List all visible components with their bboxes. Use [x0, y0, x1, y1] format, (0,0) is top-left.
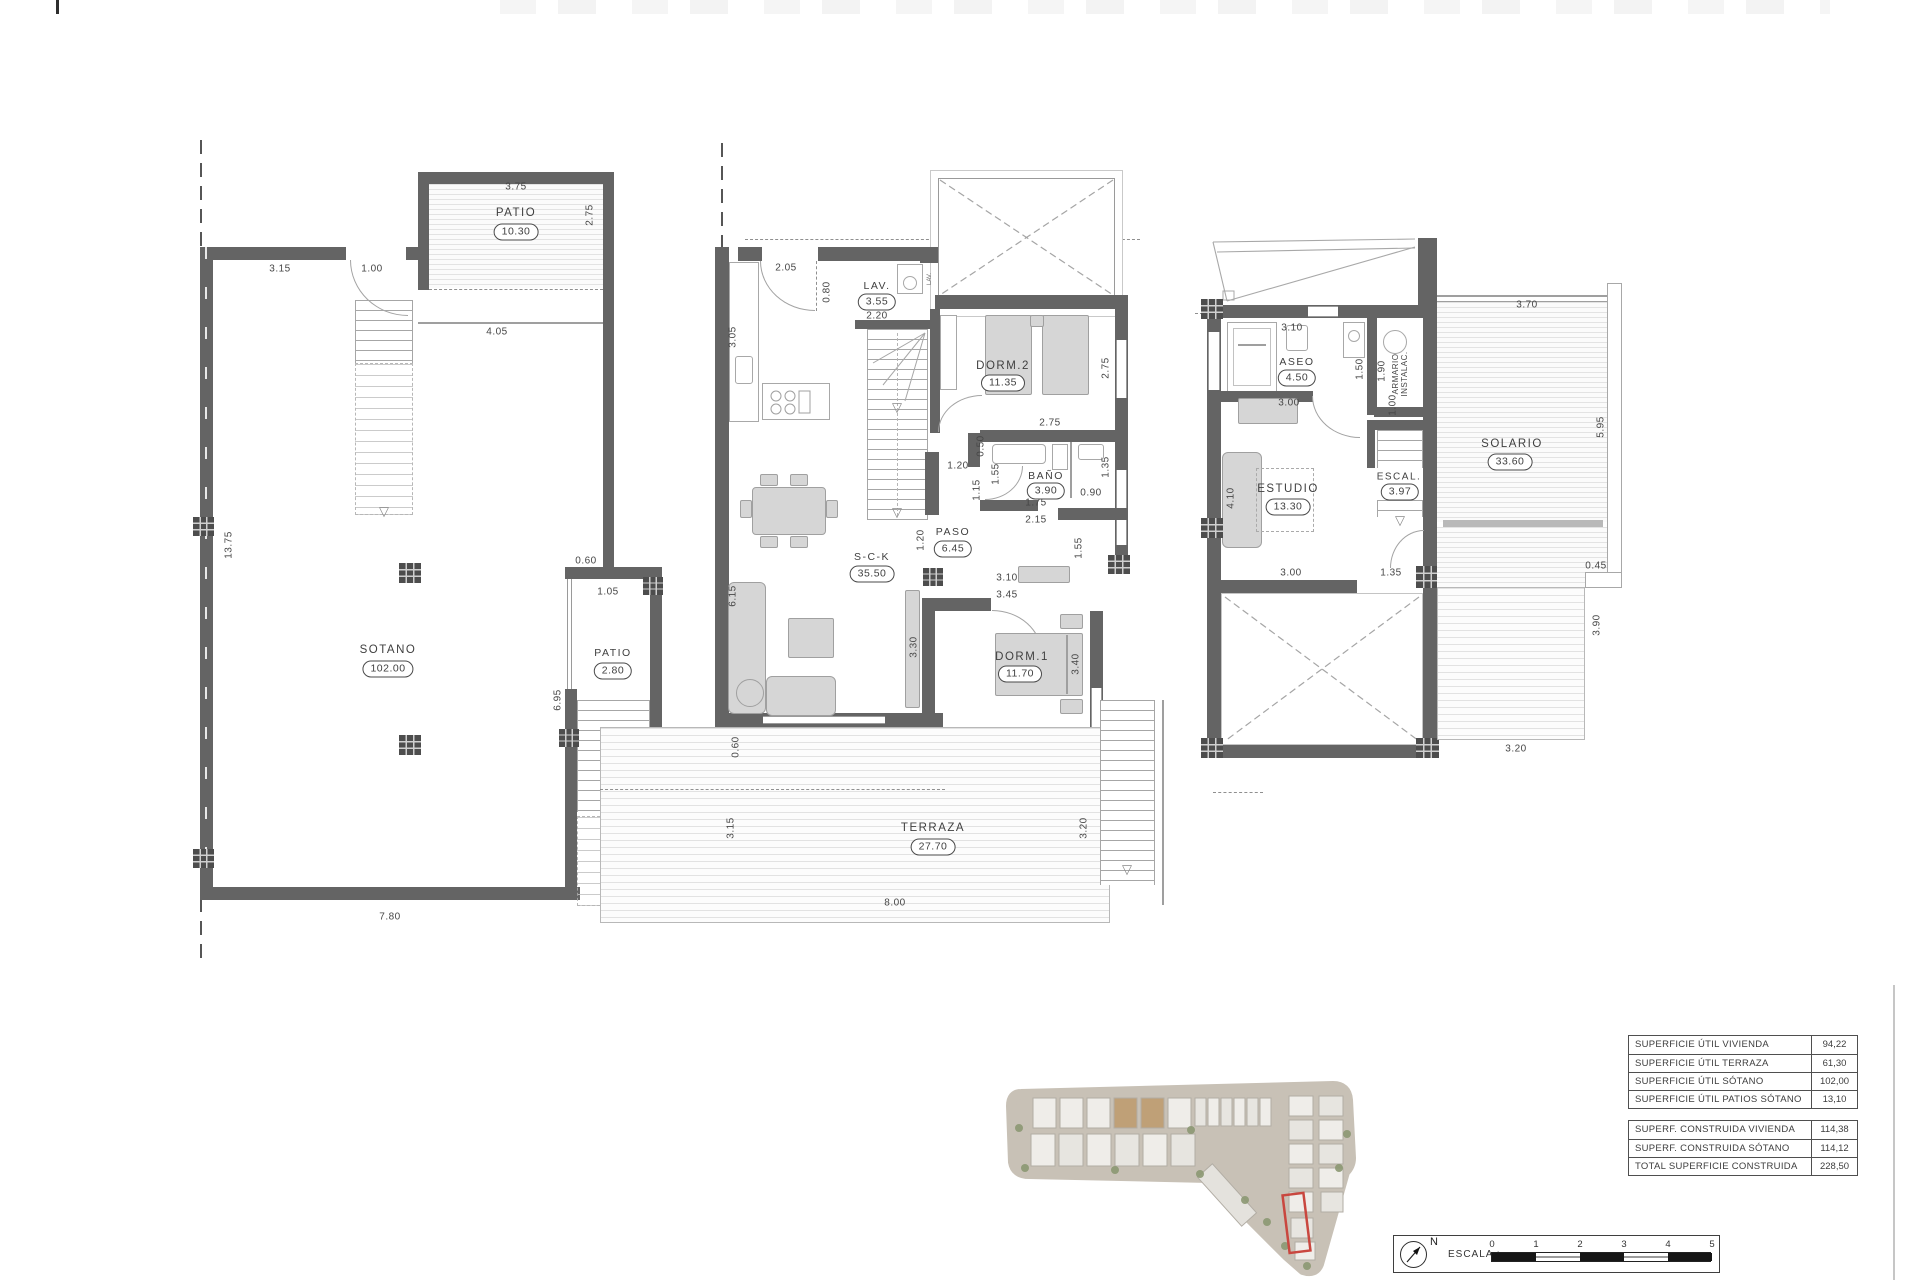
table-row: SUPERFICIE ÚTIL VIVIENDA94,22: [1629, 1036, 1857, 1054]
dorm1-nightstand-bottom: [1060, 699, 1083, 714]
room-area-solario: 33.60: [1488, 454, 1533, 471]
ground-stair-arrow-icon: ▽: [892, 401, 902, 416]
dim: 3.10: [1281, 323, 1302, 334]
room-area-aseo: 4.50: [1278, 370, 1316, 387]
room-label-solario: SOLARIO: [1481, 438, 1543, 450]
column: [399, 563, 421, 583]
upper-wall-bottom: [1207, 745, 1437, 758]
ground-wall-top: [738, 247, 762, 261]
table-cell-label: SUPERF. CONSTRUIDA VIVIENDA: [1629, 1121, 1811, 1139]
scale-tick: 1: [1533, 1239, 1538, 1250]
column: [643, 577, 663, 595]
escal-door-arc: [1390, 530, 1424, 568]
dim: 0.50: [976, 435, 987, 456]
dim: 0.90: [1080, 488, 1101, 499]
scale-seg: [1536, 1253, 1580, 1261]
dorm2-door-arc: [938, 395, 982, 432]
solario-hatch2: [1437, 527, 1607, 587]
dim: 1.55: [991, 463, 1002, 484]
dorm2-wall-left: [930, 309, 940, 433]
dim: 7.80: [379, 912, 400, 923]
kitchen-sink: [735, 356, 753, 384]
room-area-sck: 35.50: [850, 566, 895, 583]
siteplan-map: [995, 1078, 1365, 1280]
dim: 3.70: [1516, 300, 1537, 311]
dorm1-nightstand-top: [1060, 614, 1083, 629]
exterior-stair: [1100, 700, 1155, 885]
room-label-sotano: SOTANO: [360, 644, 417, 656]
armario-wall-left: [1367, 318, 1377, 415]
column: [1201, 518, 1223, 538]
shower-head-line: [1238, 344, 1266, 346]
dim: 6.95: [553, 689, 564, 710]
sidepatio-wall-left: [565, 689, 577, 900]
room-label-estudio: ESTUDIO: [1257, 483, 1319, 495]
dim: 5.95: [1596, 416, 1607, 437]
dim: 3.20: [1505, 744, 1526, 755]
upper-mid-wall: [1207, 580, 1357, 593]
escal-arrow-icon: ▽: [1395, 514, 1405, 529]
bano-divider: [1070, 442, 1072, 498]
dim: 0.60: [731, 736, 742, 757]
dim: 2.15: [1025, 515, 1046, 526]
sotano-stair-upper: [355, 300, 413, 363]
table-cell-value: 102,00: [1811, 1073, 1857, 1090]
stair-wall-right: [925, 452, 939, 515]
north-label: N: [1430, 1236, 1438, 1248]
room-label-patio-top: PATIO: [496, 207, 536, 219]
dim: 3.90: [1592, 614, 1603, 635]
table-cell-value: 13,10: [1811, 1091, 1857, 1108]
escal-stairs-top: [1377, 430, 1423, 468]
table-cell-label: SUPERFICIE ÚTIL PATIOS SÓTANO: [1629, 1091, 1811, 1108]
escal-wall-top: [1373, 420, 1423, 430]
ground-wall-top-corner: [920, 247, 938, 263]
dim: 1.05: [597, 587, 618, 598]
scale-seg: [1492, 1253, 1536, 1261]
dining-chair: [760, 474, 778, 486]
room-label-lav: LAV.: [863, 280, 890, 292]
page-frame-line: [1893, 985, 1895, 1280]
upper-wall-right: [1423, 315, 1437, 758]
armario-label-line2: INSTALAC.: [1400, 351, 1409, 396]
bano-wall-bottom2: [1058, 508, 1128, 520]
armario-label-line1: ARMARIO: [1391, 354, 1400, 395]
scale-strip: 0 1 2 3 4 5: [1491, 1252, 1711, 1262]
scale-tick: 2: [1577, 1239, 1582, 1250]
sotano-wall-top: [200, 247, 346, 260]
scale-bar: N ESCALA : 0 1 2 3 4 5: [1393, 1235, 1720, 1273]
sotano-stair-dashed: [355, 363, 413, 515]
dining-chair: [790, 474, 808, 486]
dim: 13.75: [224, 531, 235, 559]
terraza-hatch: [600, 727, 1110, 923]
room-label-paso: PASO: [936, 526, 970, 538]
dim: 1.00: [361, 264, 382, 275]
basement-patio-baseline: [418, 322, 614, 324]
column: [1108, 555, 1130, 574]
pouf: [736, 679, 764, 707]
dim: 3.15: [269, 264, 290, 275]
aseo-door-arc: [1312, 396, 1360, 438]
dim: 8.00: [884, 898, 905, 909]
table-cell-label: SUPERFICIE ÚTIL TERRAZA: [1629, 1055, 1811, 1072]
table-row: SUPERFICIE ÚTIL TERRAZA61,30: [1629, 1054, 1857, 1072]
dim: 4.10: [1226, 487, 1237, 508]
dim: 1.75: [1025, 498, 1046, 509]
basement-boundary-line: [200, 140, 202, 250]
sotano-wall-bottom: [200, 887, 580, 900]
table-row: SUPERFICIE ÚTIL PATIOS SÓTANO13,10: [1629, 1090, 1857, 1108]
dorm2-wall-top: [935, 295, 1128, 309]
dim: 0.60: [575, 556, 596, 567]
upper-wall-right-top: [1418, 238, 1437, 318]
column: [193, 849, 214, 868]
upper-window-top: [1308, 306, 1338, 317]
room-area-patio-top: 10.30: [494, 224, 539, 241]
aseo-basin-bowl: [1348, 330, 1360, 342]
scale-seg: [1624, 1253, 1668, 1261]
north-arrow-icon: [1400, 1241, 1427, 1268]
dim: 3.75: [505, 182, 526, 193]
room-label-dorm1: DORM.1: [995, 651, 1049, 663]
upper-window-left: [1208, 332, 1220, 390]
solario-top-line1: [1437, 295, 1607, 297]
room-area-escal: 3.97: [1381, 484, 1419, 501]
dining-chair: [790, 536, 808, 548]
table-row: SUPERF. CONSTRUIDA VIVIENDA114,38: [1629, 1121, 1857, 1139]
dim: 3.45: [996, 590, 1017, 601]
column: [399, 735, 421, 755]
table-row: TOTAL SUPERFICIE CONSTRUIDA228,50: [1629, 1157, 1857, 1175]
room-area-paso: 6.45: [934, 541, 972, 558]
ground-stair-arrow2-icon: ▽: [892, 506, 902, 521]
table-row: SUPERFICIE ÚTIL SÓTANO102,00: [1629, 1072, 1857, 1090]
sotano-wall-left-dashes: [205, 247, 207, 900]
table-cell-value: 61,30: [1811, 1055, 1857, 1072]
table-cell-value: 114,12: [1811, 1140, 1857, 1157]
exterior-stair-rail: [1162, 700, 1164, 905]
page-top-artifacts: [500, 0, 1830, 14]
room-label-terraza: TERRAZA: [901, 822, 965, 834]
dim: 1.00: [1388, 394, 1399, 415]
table-superficie-util: SUPERFICIE ÚTIL VIVIENDA94,22 SUPERFICIE…: [1628, 1035, 1858, 1109]
scale-tick: 3: [1621, 1239, 1626, 1250]
sotano-stair-arrow-icon: ▽: [379, 505, 389, 520]
dim: 0.45: [1585, 561, 1606, 572]
sotano-wall-right-upper: [603, 322, 614, 567]
scale-tick: 0: [1489, 1239, 1494, 1250]
table-cell-label: SUPERFICIE ÚTIL SÓTANO: [1629, 1073, 1811, 1090]
room-label-dorm2: DORM.2: [976, 360, 1030, 372]
dim: 1.15: [972, 479, 983, 500]
room-label-bano: BAÑO: [1028, 470, 1064, 482]
dining-chair: [740, 500, 752, 518]
dorm2-nightstand: [1030, 315, 1044, 327]
dim: 2.75: [1039, 418, 1060, 429]
dim: 2.75: [1101, 357, 1112, 378]
basement-boundary-line2: [200, 898, 202, 963]
bano-vanity: [1052, 444, 1068, 470]
upper-void-x-icon: [1221, 593, 1423, 745]
ground-sliding-door: [763, 716, 885, 724]
dining-chair: [826, 500, 838, 518]
dorm2-closet: [940, 315, 957, 390]
room-label-patio-side: PATIO: [594, 647, 631, 659]
dim: 1.50: [1355, 358, 1366, 379]
dim: 3.20: [1079, 817, 1090, 838]
escal-wall-left: [1367, 420, 1375, 468]
sidepatio-window: [567, 579, 572, 689]
paso-closet: [1018, 566, 1070, 583]
dim: 3.30: [909, 636, 920, 657]
table-cell-value: 228,50: [1811, 1158, 1857, 1175]
room-area-patio-side: 2.80: [594, 663, 632, 680]
dim: 1.35: [1101, 456, 1112, 477]
room-area-sotano: 102.00: [362, 661, 413, 678]
column: [193, 517, 214, 536]
page-top-tick: [56, 0, 59, 14]
terraza-dashline: [600, 789, 945, 790]
room-area-estudio: 13.30: [1266, 499, 1311, 516]
dining-table: [752, 487, 826, 535]
washing-machine-drum: [903, 276, 917, 290]
dim: 2.05: [775, 263, 796, 274]
ground-boundary-line: [721, 143, 723, 247]
scale-tick: 4: [1665, 1239, 1670, 1250]
dim: 1.90: [1377, 360, 1388, 381]
scale-tick: 5: [1709, 1239, 1714, 1250]
dim: 1.20: [916, 529, 927, 550]
dim: 3.00: [1280, 568, 1301, 579]
floorplan-sheet: ▽ ▽ 3.75 2.75 PATIO 10.30 3.15 1.00 4.05…: [0, 0, 1920, 1280]
sofa-loveseat: [766, 676, 836, 716]
dim: 1.20: [947, 461, 968, 472]
table-cell-value: 114,38: [1811, 1121, 1857, 1139]
dim: 0.80: [822, 281, 833, 302]
table-cell-label: SUPERF. CONSTRUIDA SÓTANO: [1629, 1140, 1811, 1157]
solario-parapet-right: [1607, 283, 1622, 588]
lower-deck-hatch: [1437, 587, 1585, 740]
basement-patio-dashline: [429, 289, 603, 290]
bathtub: [992, 444, 1046, 464]
ground-wall-left: [715, 247, 729, 727]
ground-entry-door-leaf: [816, 261, 817, 311]
column: [1416, 738, 1439, 758]
basement-patio-wall-right: [603, 172, 614, 322]
table-cell-label: SUPERFICIE ÚTIL VIVIENDA: [1629, 1036, 1811, 1054]
void-x-icon: [938, 178, 1115, 297]
column: [1201, 738, 1223, 758]
sotano-wall-top2: [406, 247, 418, 260]
dim: 1.35: [1380, 568, 1401, 579]
coffee-table: [788, 618, 834, 658]
dorm2-bed2: [1042, 315, 1089, 395]
dorm1-wall-top: [935, 598, 991, 611]
bano-wall-top: [980, 430, 1126, 442]
dorm1-bed-pillow-line: [1066, 635, 1068, 694]
room-area-terraza: 27.70: [911, 839, 956, 856]
dim: 2.20: [866, 311, 887, 322]
table-cell-value: 94,22: [1811, 1036, 1857, 1054]
table-row: SUPERF. CONSTRUIDA SÓTANO114,12: [1629, 1139, 1857, 1157]
table-cell-label: TOTAL SUPERFICIE CONSTRUIDA: [1629, 1158, 1811, 1175]
scale-seg: [1580, 1253, 1624, 1261]
room-area-dorm1: 11.70: [998, 666, 1042, 683]
dim: 3.00: [1278, 398, 1299, 409]
dim: 3.15: [726, 817, 737, 838]
room-label-aseo: ASEO: [1279, 356, 1314, 368]
dim: 1.55: [1074, 537, 1085, 558]
dorm2-window-right: [1116, 340, 1127, 398]
column: [1416, 566, 1439, 588]
column: [1201, 299, 1223, 319]
dim: 3.40: [1071, 653, 1082, 674]
table-superficie-construida: SUPERF. CONSTRUIDA VIVIENDA114,38 SUPERF…: [1628, 1120, 1858, 1176]
cooktop-icon: [768, 388, 812, 416]
dim: 2.75: [585, 204, 596, 225]
exterior-stair-arrow-icon: ▽: [1122, 863, 1132, 878]
shower-inner: [1233, 328, 1271, 386]
basement-patio-wall-left: [418, 172, 429, 290]
scale-seg: [1668, 1253, 1712, 1261]
solario-step: [1585, 572, 1622, 588]
dim: 3.05: [728, 326, 739, 347]
lav-appliance-label: LAV.: [927, 273, 933, 285]
upper-below-dashes: [1213, 792, 1263, 793]
solario-hatch: [1437, 302, 1607, 522]
dining-chair: [760, 536, 778, 548]
room-area-dorm2: 11.35: [981, 375, 1025, 392]
column: [923, 568, 943, 586]
dim: 4.05: [486, 327, 507, 338]
dim: 6.15: [728, 585, 739, 606]
room-label-escal: ESCAL.: [1377, 472, 1422, 483]
solario-band: [1443, 520, 1603, 527]
dim: 3.10: [996, 573, 1017, 584]
room-area-lav: 3.55: [858, 294, 896, 311]
stair-winders: [867, 329, 928, 404]
column: [559, 729, 579, 747]
room-label-sck: S-C-K: [854, 551, 890, 563]
